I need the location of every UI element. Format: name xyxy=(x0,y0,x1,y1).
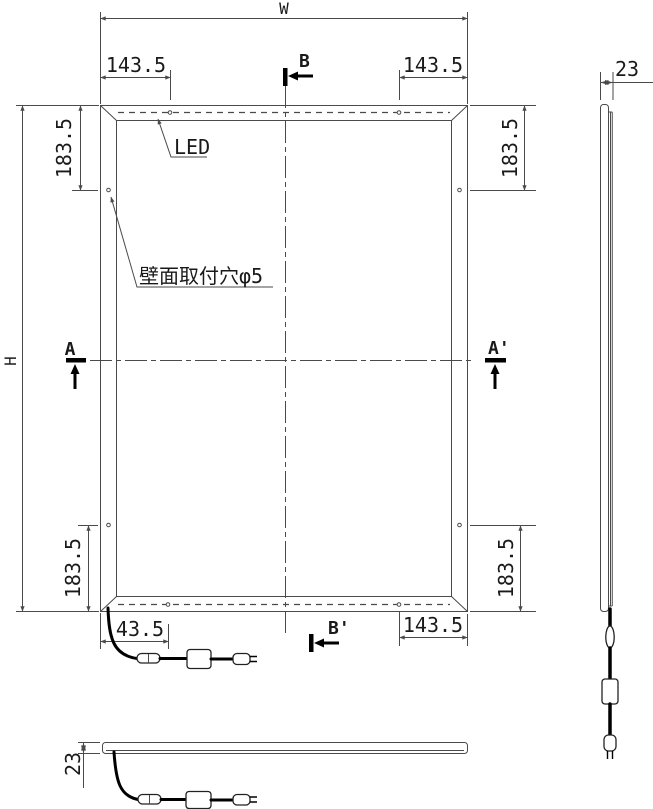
dimension-left-bottom-183-5: 183.5 xyxy=(61,526,98,612)
frame-inner-edge xyxy=(117,121,452,597)
section-a-label: A xyxy=(65,339,76,360)
power-plug xyxy=(233,795,250,806)
section-marker-b: B xyxy=(283,51,313,86)
drawing-sheet: W H 143.5 143.5 183.5 183 xyxy=(0,0,653,809)
section-b-label: B xyxy=(299,51,310,72)
bottom-view: 23 xyxy=(61,743,468,809)
section-marker-a-prime: A' xyxy=(485,338,510,389)
frame-miter-joints xyxy=(101,106,468,612)
power-plug xyxy=(604,735,616,751)
power-cable xyxy=(114,752,138,800)
power-plug xyxy=(233,654,250,665)
mounting-hole xyxy=(458,523,462,527)
ac-adapter xyxy=(187,650,211,669)
dim-value: 143.5 xyxy=(403,613,463,637)
dimension-side-thickness-23: 23 xyxy=(601,57,653,100)
extension-lines xyxy=(78,743,100,754)
dim-value: 183.5 xyxy=(52,118,76,178)
side-view: 23 xyxy=(601,57,653,759)
mounting-hole xyxy=(107,188,111,192)
dimension-width: W xyxy=(101,0,468,104)
mounting-hole xyxy=(107,523,111,527)
section-arrow-head xyxy=(491,364,500,374)
dim-width-label: W xyxy=(279,0,289,18)
dim-height-label: H xyxy=(1,356,20,366)
power-cable-assembly-bottom xyxy=(114,752,257,809)
dimension-top-left-143-5: 143.5 xyxy=(101,53,171,100)
plug-prongs xyxy=(250,657,257,662)
section-arrow-head xyxy=(314,639,324,648)
mounting-hole xyxy=(458,188,462,192)
section-bar xyxy=(309,634,314,652)
mounting-hole xyxy=(166,603,170,607)
section-bar xyxy=(283,68,288,86)
section-arrow-head xyxy=(71,364,80,374)
mounting-hole xyxy=(168,111,172,115)
technical-drawing-canvas: W H 143.5 143.5 183.5 183 xyxy=(0,0,653,809)
section-b-prime-label: B' xyxy=(328,618,350,639)
mount-hole-label: 壁面取付穴φ5 xyxy=(139,264,263,288)
dim-value: 23 xyxy=(61,752,85,776)
front-view: W H 143.5 143.5 183.5 183 xyxy=(1,0,536,669)
dim-value: 183.5 xyxy=(494,538,518,598)
inline-connector xyxy=(606,626,614,648)
section-marker-a: A xyxy=(65,339,86,389)
dimension-bottom-thickness-23: 23 xyxy=(61,743,100,789)
dimension-right-bottom-183-5: 183.5 xyxy=(470,526,536,612)
panel-profile xyxy=(601,105,609,612)
section-a-prime-label: A' xyxy=(488,338,510,359)
section-arrow-head xyxy=(288,72,298,81)
plug-prongs xyxy=(608,751,613,759)
led-label: LED xyxy=(174,135,210,159)
dimension-top-right-143-5: 143.5 xyxy=(400,53,468,100)
dim-value: 43.5 xyxy=(116,617,164,641)
section-marker-b-prime: B' xyxy=(309,618,350,652)
plug-prongs xyxy=(250,797,257,802)
dim-value: 23 xyxy=(615,57,639,81)
extension-lines xyxy=(601,72,614,100)
ac-adapter xyxy=(186,792,211,809)
dimension-right-top-183-5: 183.5 xyxy=(470,106,536,191)
mounting-hole xyxy=(397,111,401,115)
wall-mounting-holes xyxy=(107,111,462,607)
dim-value: 143.5 xyxy=(106,53,166,77)
mounting-hole xyxy=(397,603,401,607)
ac-adapter xyxy=(602,679,618,704)
arrow-head xyxy=(605,80,613,85)
led-callout: LED xyxy=(158,119,210,159)
dimension-bottom-right-143-5: 143.5 xyxy=(400,612,468,646)
power-cable-assembly-side xyxy=(602,609,618,759)
dim-value: 143.5 xyxy=(403,53,463,77)
extension-lines xyxy=(16,106,99,612)
dim-value: 183.5 xyxy=(498,118,522,178)
panel-profile xyxy=(103,743,468,754)
mount-hole-callout: 壁面取付穴φ5 xyxy=(111,197,273,288)
frame-outer-edge xyxy=(101,106,468,612)
panel-back-plate xyxy=(609,112,613,606)
dim-value: 183.5 xyxy=(61,538,85,598)
dimension-left-top-183-5: 183.5 xyxy=(52,106,98,191)
